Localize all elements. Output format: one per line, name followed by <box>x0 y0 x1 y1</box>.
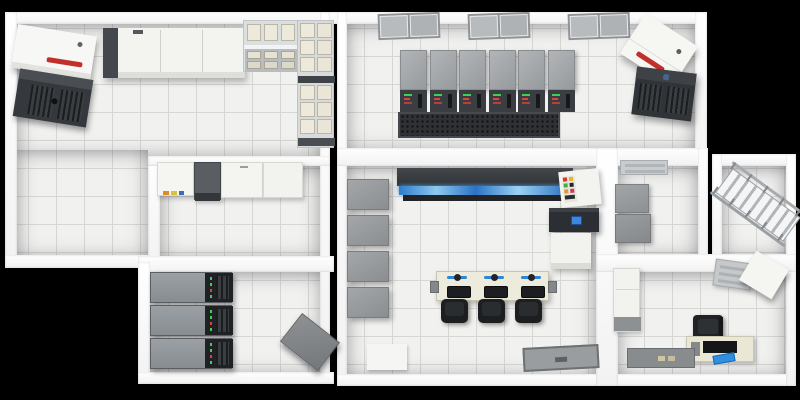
indicator-dot <box>663 74 670 81</box>
oven-handle <box>418 94 422 108</box>
bin <box>317 57 332 72</box>
led-green <box>210 277 212 280</box>
floor-mat <box>522 344 599 372</box>
hood-body <box>397 168 573 186</box>
button-red <box>563 177 567 181</box>
wall-stairwell-top <box>712 154 796 166</box>
rail-post <box>761 222 767 230</box>
chair <box>515 299 542 323</box>
rail-post <box>746 174 752 182</box>
vent-grille <box>637 83 663 112</box>
station-pad <box>484 286 508 298</box>
oven-control-front <box>430 90 457 112</box>
bin-rack-vertical <box>297 20 334 148</box>
chair-seat <box>519 302 538 316</box>
display-dark <box>565 195 575 200</box>
skylight-window <box>468 12 531 40</box>
exhaust-hood-blue-light <box>397 168 573 202</box>
mat-recess <box>555 357 567 363</box>
led-red <box>493 98 499 100</box>
led-green <box>210 328 212 331</box>
bin-column-lower <box>300 85 333 136</box>
latch-dot <box>675 48 682 55</box>
control-color-panel <box>562 175 578 202</box>
window-pane <box>600 14 629 37</box>
cabinet-dark <box>194 162 221 200</box>
vent-grille <box>665 86 691 115</box>
led-red <box>493 102 501 104</box>
chiller-unit <box>150 338 232 369</box>
led-red <box>463 98 469 100</box>
led-green <box>210 283 212 286</box>
rail-post <box>779 197 785 205</box>
led-green <box>210 361 212 364</box>
rail-post <box>712 186 718 194</box>
bin <box>264 51 278 59</box>
wall-kitchen-office-bottom <box>337 374 796 386</box>
shoe <box>658 356 665 361</box>
bin <box>300 40 315 55</box>
chiller-unit <box>150 272 232 303</box>
wall-store-right <box>698 148 708 266</box>
handle-dot <box>51 98 58 105</box>
latch-dot <box>77 42 83 48</box>
chiller-control-panel <box>205 339 233 368</box>
gray-box <box>347 287 389 318</box>
front-shade <box>118 72 245 78</box>
front-shade <box>195 193 220 201</box>
door-seam <box>160 30 161 74</box>
rack-shelf-dark <box>298 76 335 83</box>
office-cabinet-column <box>613 268 640 332</box>
button-yellow <box>569 177 573 181</box>
wall-chiller-left <box>138 262 150 384</box>
bin <box>300 102 315 117</box>
rail-post <box>729 198 735 206</box>
led-green <box>552 94 560 96</box>
bottle-orange <box>163 191 169 195</box>
led-green <box>210 349 212 352</box>
wall-chiller-bottom <box>138 372 334 384</box>
cabinet-handle <box>240 166 248 168</box>
bin <box>300 57 315 72</box>
fridge-cabinet-row <box>103 28 245 78</box>
rack-shelf-dark <box>298 138 335 146</box>
faucet-knob <box>491 274 498 281</box>
button-pink <box>570 189 574 193</box>
window-pane <box>500 14 529 37</box>
front-shade <box>551 263 591 269</box>
wall-annex-bottom <box>5 255 152 268</box>
bottle-blue <box>179 191 184 195</box>
window-pane <box>380 15 409 38</box>
bin <box>247 61 261 69</box>
cabinet-gray <box>615 214 651 243</box>
drawer-gray <box>614 317 641 331</box>
led-green <box>404 94 412 96</box>
station-group <box>443 274 547 300</box>
led-green <box>522 94 530 96</box>
floorplan-3d-top-view <box>0 0 800 400</box>
button-orange <box>564 189 568 193</box>
pantry-cabinet-row <box>157 162 303 202</box>
chair-seat <box>482 302 501 316</box>
floor-drain-grate <box>398 112 560 138</box>
window-pane <box>410 14 439 37</box>
bin <box>317 102 332 117</box>
office-desk <box>686 336 754 362</box>
chiller-stack <box>150 272 232 372</box>
led-red <box>210 355 212 358</box>
cabinet-white <box>263 162 303 198</box>
led-green <box>210 295 212 298</box>
oven-handle <box>566 94 570 108</box>
vent-slat <box>625 164 665 167</box>
faucet-knob <box>528 274 535 281</box>
rail-post <box>745 210 751 218</box>
cabinet-white <box>157 162 194 196</box>
faucet-knob <box>454 274 461 281</box>
bin <box>317 23 332 38</box>
oven-handle <box>536 94 540 108</box>
bin <box>300 85 315 100</box>
bin <box>264 61 278 69</box>
button-black <box>569 183 573 187</box>
chiller-control-panel <box>205 306 233 335</box>
bin <box>317 119 332 134</box>
bottle-yellow <box>171 191 177 195</box>
panel-grille <box>216 309 229 332</box>
chair-seat <box>698 319 718 334</box>
rail-post <box>730 162 736 170</box>
chair-armrest <box>719 317 723 337</box>
wall-divider-center <box>337 12 347 386</box>
door-seam <box>616 289 639 290</box>
shoe <box>668 356 675 361</box>
bin <box>317 40 332 55</box>
led-green <box>463 94 471 96</box>
table-clamp <box>548 281 557 293</box>
oven-handle <box>507 94 511 108</box>
dark-unit-blue-display <box>549 208 599 232</box>
led-red <box>210 289 212 292</box>
office-floor-mat <box>627 348 695 368</box>
bin <box>281 24 295 41</box>
oven-top <box>430 50 457 90</box>
led-green <box>493 94 501 96</box>
cabinet-white <box>221 162 263 198</box>
wall-pantry-chiller <box>138 256 334 272</box>
bin-column-upper <box>300 23 333 74</box>
led-red <box>434 98 440 100</box>
oven-control-front <box>400 90 427 112</box>
vent-grille <box>57 89 85 122</box>
bin <box>247 24 261 41</box>
cabinet-gray <box>615 184 649 213</box>
led-red <box>463 102 471 104</box>
led-green <box>210 310 212 313</box>
window-pane <box>570 15 599 38</box>
led-red <box>434 102 442 104</box>
hood-blue-strip <box>399 186 569 195</box>
oven-control-front <box>459 90 486 112</box>
oven-top <box>548 50 575 90</box>
gray-box <box>347 215 389 246</box>
white-counter-box <box>551 233 591 269</box>
bin <box>264 24 278 41</box>
chair-seat <box>445 302 464 316</box>
oven-control-front <box>489 90 516 112</box>
oven-top <box>459 50 486 90</box>
panel-grille <box>216 342 229 365</box>
bin <box>317 85 332 100</box>
oven-handle <box>448 94 452 108</box>
store-cabinet-column <box>615 184 651 244</box>
top-vent <box>133 30 143 34</box>
vent-slat <box>625 170 665 173</box>
combi-oven-row <box>400 50 578 112</box>
gray-box-column <box>347 179 389 324</box>
panel-grille <box>216 276 229 299</box>
floor-storage-annex <box>17 150 148 257</box>
oven-control-front <box>518 90 545 112</box>
led-red <box>522 98 528 100</box>
rail-post <box>777 233 783 241</box>
work-table-three-stations <box>436 271 549 301</box>
table-clamp <box>430 281 439 293</box>
dark-condenser-unit <box>631 67 696 122</box>
oven-top <box>518 50 545 90</box>
bin <box>281 51 295 59</box>
oven-top <box>489 50 516 90</box>
led-red <box>552 98 558 100</box>
station-pad <box>521 286 545 298</box>
chiller-unit <box>150 305 232 336</box>
skylight-window <box>568 12 631 40</box>
oven-control-front <box>548 90 575 112</box>
chair <box>441 299 468 323</box>
led-green <box>210 343 212 346</box>
led-red <box>552 102 560 104</box>
bin <box>281 61 295 69</box>
led-green <box>210 316 212 319</box>
end-panel-dark <box>103 28 118 78</box>
led-red <box>210 322 212 325</box>
button-green <box>563 183 567 187</box>
skylight-window <box>378 12 441 40</box>
blue-display <box>571 216 582 225</box>
bin <box>300 119 315 134</box>
gray-box <box>347 251 389 282</box>
led-red <box>404 98 410 100</box>
door-seam <box>202 30 203 74</box>
wall-stairwell-left <box>712 154 722 266</box>
top-edge <box>549 208 599 212</box>
led-red <box>522 102 530 104</box>
station-pad <box>447 286 471 298</box>
bin <box>247 51 261 59</box>
bin <box>300 23 315 38</box>
wall-prep-right <box>695 12 707 160</box>
window-pane <box>470 15 499 38</box>
oven-top <box>400 50 427 90</box>
led-green <box>434 94 442 96</box>
led-red <box>404 102 412 104</box>
rail-post <box>762 186 768 194</box>
oven-handle <box>477 94 481 108</box>
chiller-control-panel <box>205 273 233 302</box>
brand-label-red <box>46 57 82 68</box>
rail-post <box>795 209 800 217</box>
hood-under-shadow <box>403 195 567 201</box>
small-white-box <box>367 344 407 370</box>
combi-oven-color-panel <box>558 168 602 208</box>
gray-box <box>347 179 389 210</box>
chair-row <box>441 299 551 325</box>
chair <box>478 299 505 323</box>
monitor <box>703 341 737 353</box>
ceiling-vent <box>620 160 668 175</box>
